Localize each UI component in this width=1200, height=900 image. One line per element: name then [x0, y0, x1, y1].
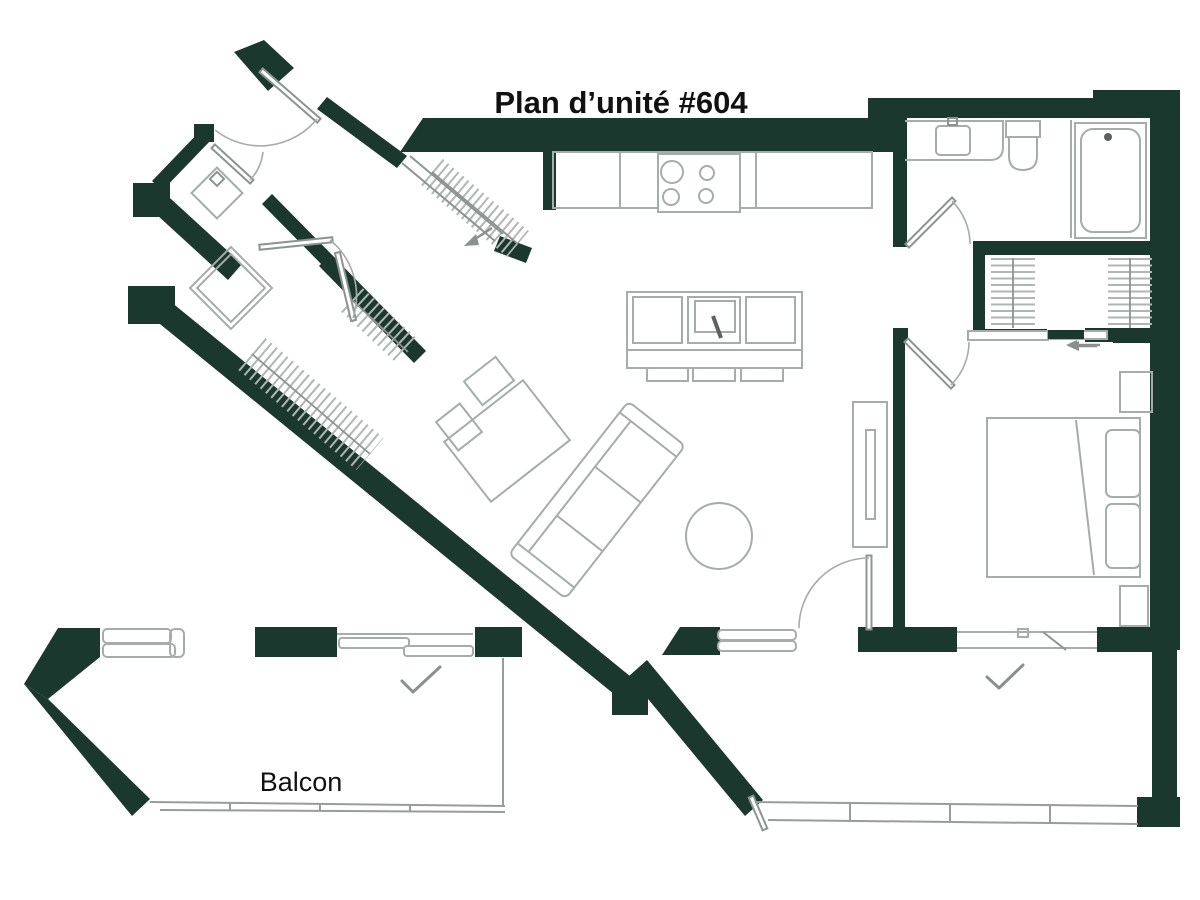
- washer: [192, 168, 243, 219]
- dining-chair: [436, 404, 482, 451]
- drain-icon: [1104, 133, 1112, 141]
- balcony2-railing: [756, 802, 1138, 824]
- wall-segment: [868, 90, 1152, 118]
- floor-plan-page: Plan d’unité #604 Balcon: [0, 0, 1200, 900]
- wall-segment: [400, 118, 893, 152]
- wall-segment: [319, 254, 426, 363]
- wall-segment: [1097, 627, 1152, 652]
- floor-plan: Plan d’unité #604 Balcon: [0, 0, 1200, 900]
- wall-segment: [973, 255, 985, 332]
- laundry-door: [215, 148, 263, 180]
- bed: [987, 418, 1140, 577]
- toilet: [1006, 121, 1040, 170]
- wall-segment: [255, 627, 337, 657]
- pillow: [1106, 430, 1140, 497]
- tv-console: [853, 402, 887, 547]
- plan-title: Plan d’unité #604: [494, 85, 748, 120]
- faucet-icon: [713, 316, 721, 338]
- wall-segment: [893, 118, 907, 247]
- balcony2-window: [718, 630, 796, 651]
- wall-segment: [973, 241, 1152, 255]
- bathtub: [1075, 123, 1146, 238]
- dining-chair: [464, 357, 514, 405]
- stove: [658, 154, 740, 212]
- wall-segment: [24, 684, 150, 816]
- balcony-door: [799, 558, 869, 628]
- wall-segment: [234, 40, 294, 91]
- balcony-label: Balcon: [260, 767, 343, 797]
- check-mark: [987, 665, 1023, 688]
- kitchen-island: [627, 292, 802, 381]
- wall-segment: [24, 628, 100, 699]
- sink: [936, 126, 970, 155]
- wall-segment: [662, 627, 720, 655]
- stool: [741, 368, 783, 381]
- pillow: [1106, 504, 1140, 568]
- wall-segment: [893, 328, 905, 628]
- wall-segment: [858, 627, 957, 652]
- bedroom-door: [908, 342, 969, 385]
- wall-segment: [317, 97, 407, 168]
- wall-segment: [1152, 645, 1177, 805]
- tv-icon: [866, 430, 875, 519]
- bath-closet-hatch: [1013, 258, 1130, 328]
- balcony-window-left: [103, 629, 184, 657]
- check-mark: [402, 667, 440, 692]
- wall-segment: [1150, 90, 1180, 650]
- bathroom-door: [909, 201, 970, 244]
- bedroom-closet-slider: [968, 330, 1097, 351]
- patio-slider: [337, 634, 473, 656]
- wall-segment: [629, 660, 763, 816]
- stool: [693, 368, 735, 381]
- bathroom-vanity: [905, 118, 1003, 160]
- entry-closet-hatch: [432, 172, 518, 244]
- sofa: [509, 401, 685, 598]
- side-table: [686, 503, 752, 569]
- nightstand: [1120, 372, 1152, 412]
- walls: [24, 40, 1180, 827]
- dining-table: [436, 357, 570, 502]
- bedroom-window: [957, 629, 1097, 650]
- wall-segment: [475, 627, 522, 657]
- nightstand: [1120, 586, 1148, 626]
- wall-segment: [543, 152, 556, 210]
- wall-segment: [194, 124, 214, 142]
- wall-segment: [1137, 797, 1180, 827]
- stool: [647, 368, 688, 381]
- wall-segment: [145, 188, 242, 280]
